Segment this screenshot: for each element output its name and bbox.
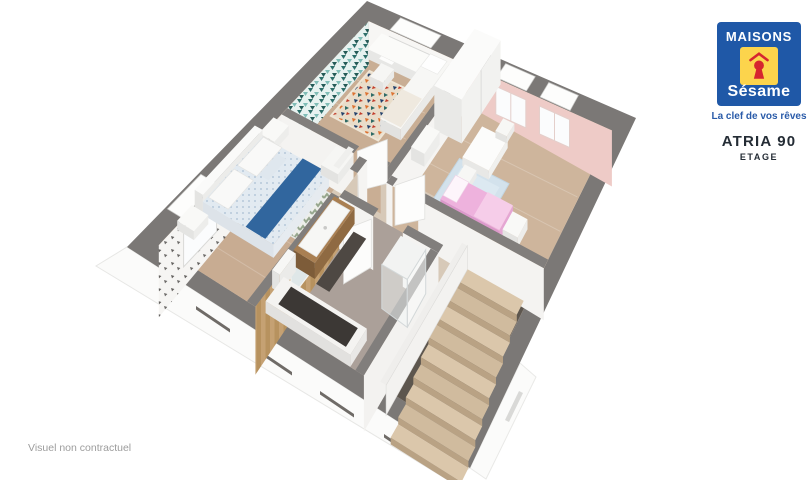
keyhole-icon	[740, 47, 778, 85]
logo-sesame-wordmark: Sésame	[717, 83, 801, 101]
disclaimer-text: Visuel non contractuel	[28, 442, 131, 454]
keyhole-icon-svg	[743, 50, 775, 82]
plan-model-name: ATRIA 90	[699, 133, 811, 150]
plan-level-label: ETAGE	[699, 152, 811, 162]
logo-maisons-wordmark: MAISONS	[717, 22, 801, 44]
floorplan-scene	[0, 0, 811, 480]
floorplan-3d-render	[0, 0, 811, 480]
builder-logo: MAISONS Sésame	[717, 22, 801, 106]
logo-tagline: La clef de vos rêves	[699, 111, 811, 122]
